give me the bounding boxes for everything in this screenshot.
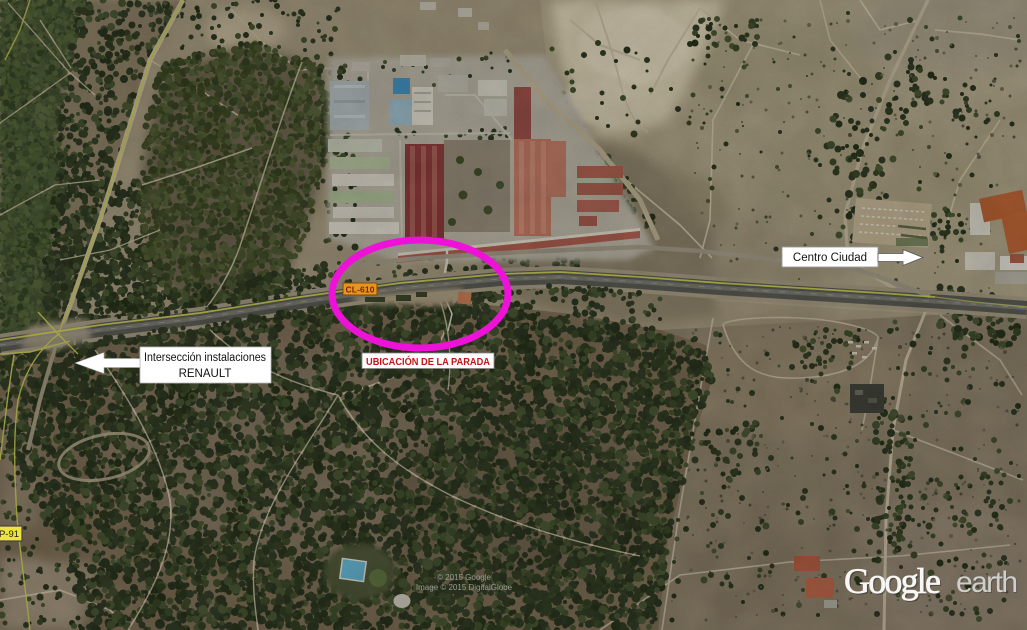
svg-text:Centro Ciudad: Centro Ciudad [793, 252, 867, 264]
svg-text:CL-610: CL-610 [346, 285, 375, 295]
svg-text:RENAULT: RENAULT [179, 368, 232, 380]
svg-text:Google: Google [844, 561, 941, 601]
svg-text:P-91: P-91 [0, 529, 19, 540]
svg-text:© 2015 Google: © 2015 Google [437, 573, 491, 582]
svg-text:earth: earth [956, 566, 1018, 599]
svg-text:Image © 2015 DigitalGlobe: Image © 2015 DigitalGlobe [416, 583, 513, 592]
svg-text:UBICACIÓN DE LA PARADA: UBICACIÓN DE LA PARADA [366, 355, 490, 368]
svg-text:Intersección instalaciones: Intersección instalaciones [144, 352, 266, 364]
